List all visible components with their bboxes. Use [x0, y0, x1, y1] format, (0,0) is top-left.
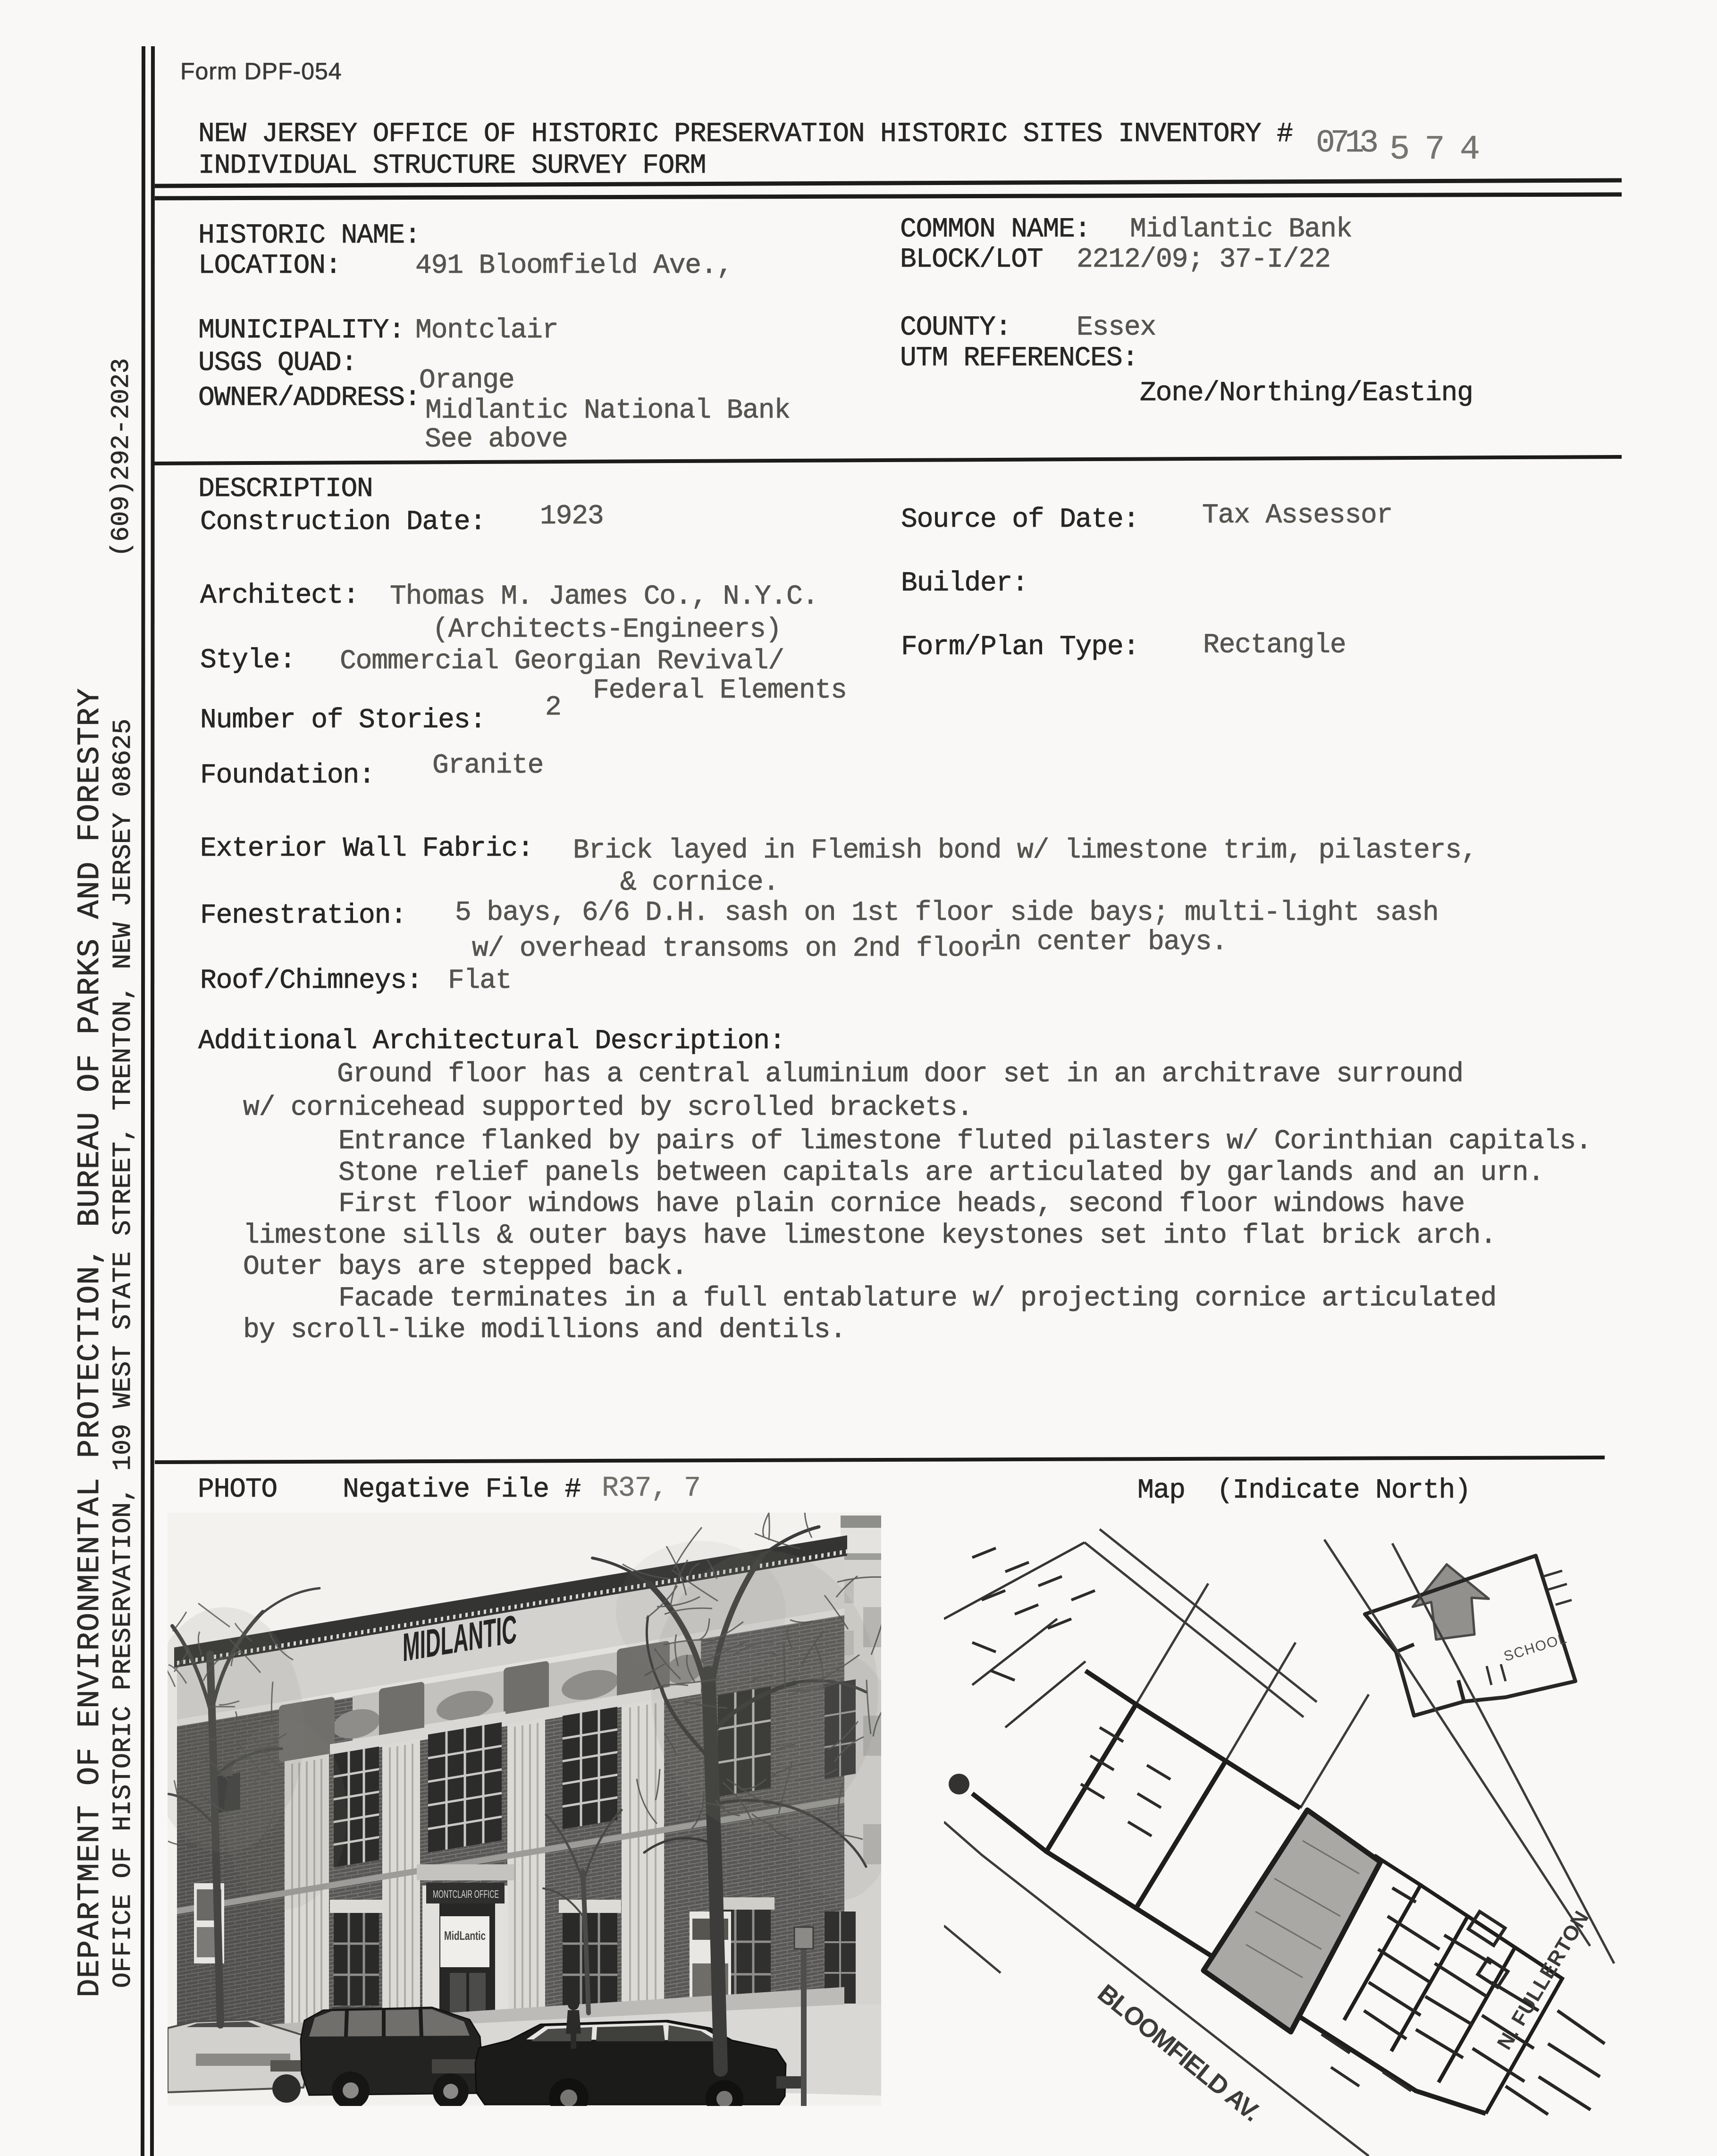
svg-text:MidLantic: MidLantic — [444, 1929, 486, 1943]
svg-text:SCHOOL: SCHOOL — [1502, 1631, 1569, 1665]
svg-text:MONTCLAIR OFFICE: MONTCLAIR OFFICE — [433, 1888, 499, 1900]
svg-text:BLOOMFIELD AV.: BLOOMFIELD AV. — [1092, 1979, 1265, 2127]
svg-text:N. FULLERTON: N. FULLERTON — [1493, 1907, 1594, 2054]
